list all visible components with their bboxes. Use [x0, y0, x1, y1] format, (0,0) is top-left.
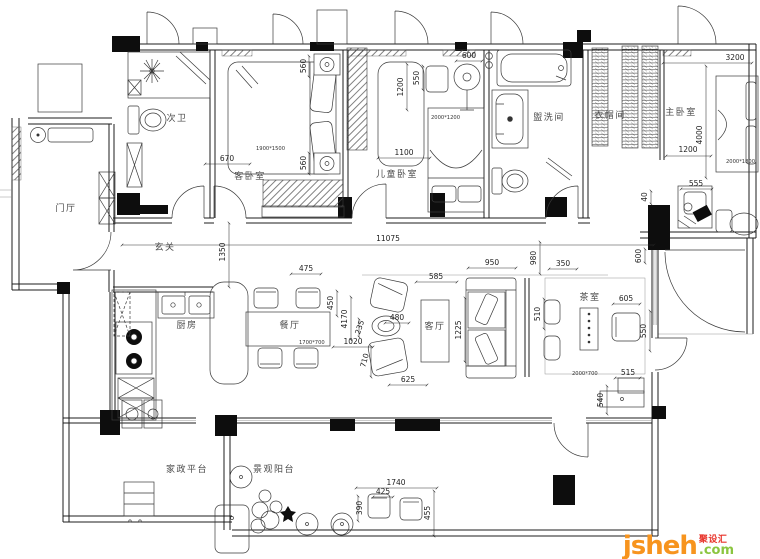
- service-cabinet: [124, 482, 154, 522]
- dim-555: 555: [689, 179, 704, 188]
- nightstand-top: [314, 54, 340, 75]
- room-entry-hall: 门厅 玄关: [31, 128, 176, 254]
- dim-550-tea: 550: [639, 324, 648, 339]
- kids-bed-size-label: 2000*1200: [431, 115, 460, 121]
- plant-cluster: [251, 490, 296, 533]
- master-bed-size-label: 2000*1800: [726, 159, 755, 165]
- room-master-bedroom: 2000*1800 主卧室: [665, 76, 758, 235]
- ceiling-fan-icon: [454, 64, 480, 110]
- dimension-labels: 670 560 560 1200 550 600 1100 3200 4000 …: [218, 51, 745, 520]
- dim-670: 670: [220, 154, 235, 163]
- washbasin-icon: [492, 90, 528, 148]
- guest-bed-size-label: 1900*1500: [256, 146, 285, 152]
- dim-1020: 1020: [343, 337, 362, 346]
- room-label-living: 客厅: [424, 320, 445, 332]
- kitchen-sink-icon: [158, 292, 214, 318]
- tea-table-size-label: 2000*700: [572, 371, 598, 377]
- dim-11075: 11075: [376, 234, 400, 243]
- dim-235: 235: [353, 319, 366, 336]
- room-kitchen: 厨房: [112, 282, 248, 420]
- dim-540: 540: [596, 393, 605, 408]
- stove-icon: [116, 322, 152, 374]
- kitchen-island: [210, 282, 248, 384]
- dim-605: 605: [619, 294, 634, 303]
- master-bed: [716, 76, 758, 172]
- dim-4170: 4170: [340, 309, 349, 328]
- dim-4000: 4000: [695, 125, 704, 144]
- lounge-corner: [716, 210, 758, 235]
- room-label-view-balcony: 景观阳台: [253, 463, 295, 475]
- room-label-foyer: 玄关: [154, 241, 175, 253]
- dim-510: 510: [533, 307, 542, 322]
- dim-710: 710: [358, 352, 370, 368]
- dim-1200-master: 1200: [678, 145, 697, 154]
- dim-950: 950: [485, 258, 500, 267]
- dim-450: 450: [326, 296, 335, 311]
- dim-560-bottom: 560: [299, 156, 308, 171]
- shower-head-icon: [140, 59, 164, 83]
- room-label-washroom: 盥洗间: [533, 111, 565, 123]
- planters: [215, 466, 353, 553]
- bathtub-icon: [497, 50, 571, 86]
- room-washroom: 盥洗间: [486, 50, 571, 194]
- dim-40: 40: [640, 192, 649, 202]
- dim-1350: 1350: [218, 242, 227, 261]
- dim-560-top: 560: [299, 59, 308, 74]
- dim-1200-kids: 1200: [396, 77, 405, 96]
- floor-plan-canvas: 次卫 1900*1500 客卧室: [0, 0, 760, 559]
- bed-pillows: [236, 66, 336, 165]
- dim-550-kids: 550: [412, 71, 421, 86]
- dim-480: 480: [390, 313, 405, 322]
- room-label-tea: 茶室: [579, 291, 600, 303]
- dim-585: 585: [429, 272, 444, 281]
- watermark-stack: 聚设汇 .com: [699, 536, 734, 556]
- sofa: [466, 278, 516, 378]
- dim-600-tea: 600: [634, 249, 643, 264]
- closet-hatch: [347, 48, 367, 150]
- room-label-service-deck: 家政平台: [166, 463, 208, 475]
- dim-3200: 3200: [725, 53, 744, 62]
- master-desk: [678, 186, 712, 228]
- room-view-balcony: 景观阳台: [215, 463, 422, 553]
- tea-table: [580, 308, 598, 350]
- room-label-second-bath: 次卫: [166, 112, 187, 124]
- room-label-kids-bedroom: 儿童卧室: [376, 168, 418, 180]
- tea-stools: [544, 300, 640, 360]
- floor-plan-page: 次卫 1900*1500 客卧室: [0, 0, 760, 559]
- dim-515: 515: [621, 368, 636, 377]
- wardrobe-hatch: [263, 180, 343, 207]
- balcony-chairs: [333, 494, 422, 535]
- casement-window-icons: [38, 6, 716, 112]
- room-guest-bedroom: 1900*1500 客卧室: [228, 54, 344, 217]
- dim-625: 625: [401, 375, 416, 384]
- room-label-kitchen: 厨房: [176, 319, 197, 331]
- toilet-icon-washroom: [492, 168, 528, 194]
- room-label-entry-hall: 门厅: [55, 202, 76, 214]
- tea-cabinet: [600, 378, 644, 407]
- watermark-logo: jsheh 聚设汇 .com: [623, 536, 734, 556]
- dim-980: 980: [529, 251, 538, 266]
- dim-425: 425: [376, 487, 391, 496]
- watermark-suffix: .com: [699, 545, 734, 556]
- room-living: 客厅: [362, 275, 608, 378]
- dim-600-kids: 600: [462, 51, 477, 60]
- room-label-guest-bedroom: 客卧室: [234, 170, 266, 182]
- watermark-brand: jsheh: [623, 536, 697, 556]
- room-dining: 1700*700 餐厅: [246, 288, 330, 368]
- shoe-cabinet: [99, 172, 115, 224]
- room-label-dining: 餐厅: [279, 319, 300, 331]
- dim-350: 350: [556, 259, 571, 268]
- dim-1100: 1100: [394, 148, 413, 157]
- armchairs: [367, 277, 408, 377]
- toilet-icon: [128, 106, 166, 134]
- dim-475: 475: [299, 264, 314, 273]
- room-label-cloakroom: 衣帽间: [594, 109, 626, 121]
- dim-390: 390: [355, 501, 364, 516]
- dim-455: 455: [423, 506, 432, 521]
- dim-1740: 1740: [386, 478, 405, 487]
- dim-1225: 1225: [454, 320, 463, 339]
- room-cloakroom: 衣帽间: [592, 46, 658, 148]
- room-second-bath: 次卫: [127, 52, 210, 187]
- dining-table-size-label: 1700*700: [299, 340, 325, 346]
- partition-screen: [525, 278, 529, 377]
- room-label-master-bedroom: 主卧室: [665, 106, 697, 118]
- nightstand-bottom: [314, 153, 340, 174]
- door-swing-icons: [73, 158, 745, 457]
